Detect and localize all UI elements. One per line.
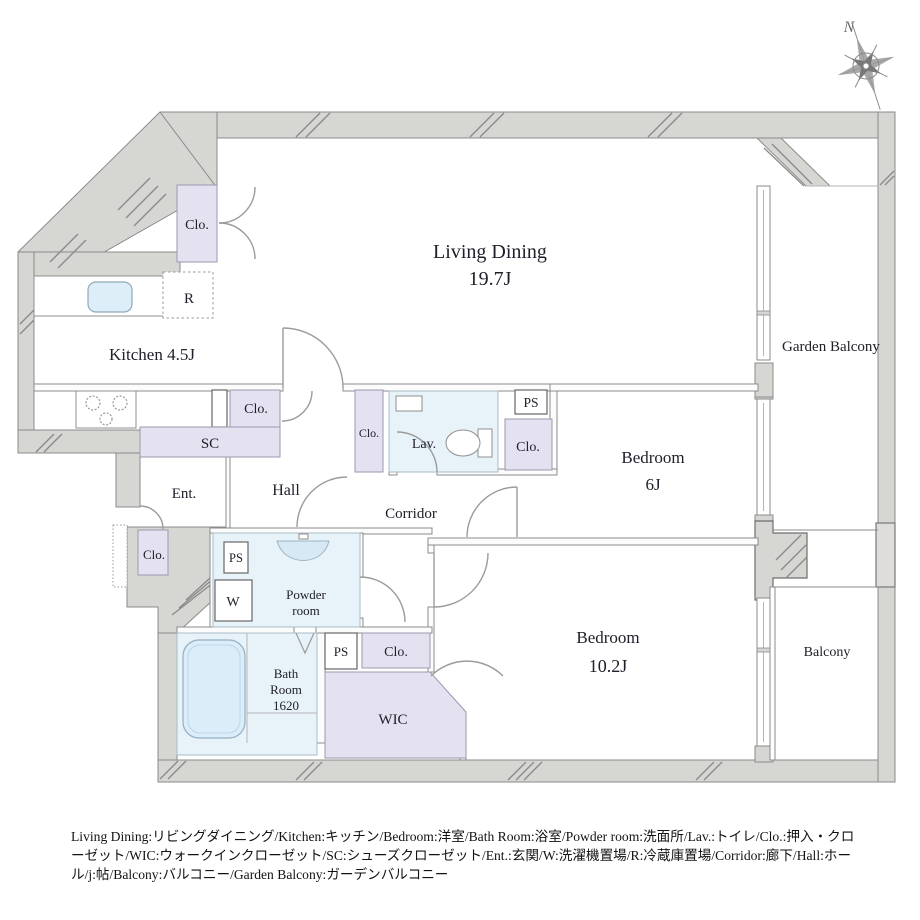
floorplan-drawing: Living Dining 19.7J Garden Balcony Kitch… xyxy=(0,0,920,920)
living-dining-size: 19.7J xyxy=(469,268,512,290)
compass-rose: N xyxy=(823,13,908,119)
living-dining-label: Living Dining xyxy=(433,241,547,263)
powder-room-label-1: Powder xyxy=(286,587,326,602)
bedroom10-label: Bedroom xyxy=(576,628,639,647)
lavatory xyxy=(389,391,498,472)
windows xyxy=(757,186,770,746)
hall-label: Hall xyxy=(272,482,300,499)
closet-label: Clo. xyxy=(359,426,379,440)
balcony-label: Balcony xyxy=(804,645,851,660)
floorplan-page: Living Dining 19.7J Garden Balcony Kitch… xyxy=(0,0,920,920)
entrance-label: Ent. xyxy=(172,486,197,502)
stove xyxy=(76,391,136,428)
corridor-label: Corridor xyxy=(385,506,437,522)
closet-label: Clo. xyxy=(244,402,268,417)
bathtub xyxy=(183,640,245,738)
closet-label: Clo. xyxy=(516,440,540,455)
pipe-space-label: PS xyxy=(523,395,538,410)
washer-label: W xyxy=(226,595,240,610)
wic-label: WIC xyxy=(378,712,407,728)
garden-balcony-label: Garden Balcony xyxy=(782,339,880,355)
closet-label: Clo. xyxy=(185,218,209,233)
bedroom10-size: 10.2J xyxy=(589,656,628,676)
closet-label: Clo. xyxy=(384,645,408,660)
lavatory-label: Lav. xyxy=(412,437,436,452)
legend-text: Living Dining:リビングダイニング/Kitchen:キッチン/Bed… xyxy=(71,827,861,884)
kitchen-sink xyxy=(88,282,132,312)
bath-label-1: Bath xyxy=(274,666,299,681)
pipe-space-label: PS xyxy=(229,551,243,565)
shoes-closet-label: SC xyxy=(201,436,219,452)
refrigerator-label: R xyxy=(184,291,194,307)
powder-room-label-2: room xyxy=(292,603,319,618)
pipe-space-label: PS xyxy=(334,644,348,659)
compass-north-label: N xyxy=(843,19,856,36)
bedroom6-label: Bedroom xyxy=(621,448,684,467)
bedroom6-size: 6J xyxy=(645,475,661,494)
bath-label-2: Room xyxy=(270,682,302,697)
kitchen-label: Kitchen 4.5J xyxy=(109,345,195,364)
balcony-lines xyxy=(770,186,878,760)
bath-label-3: 1620 xyxy=(273,698,299,713)
closet-label: Clo. xyxy=(143,547,165,562)
